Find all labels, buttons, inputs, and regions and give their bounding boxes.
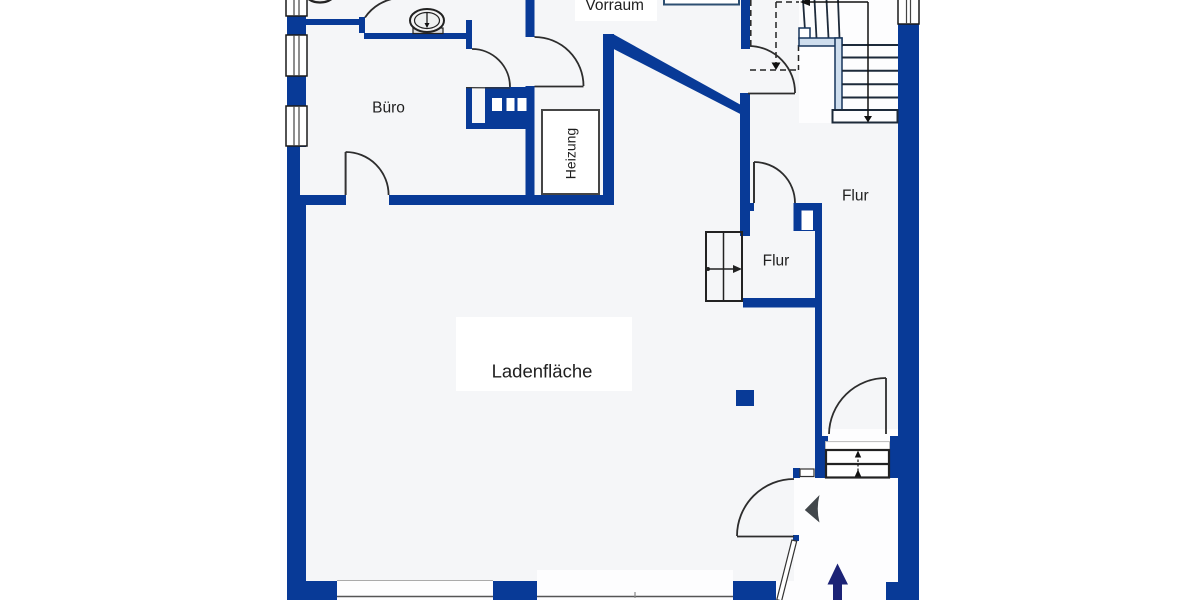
svg-text:Flur: Flur <box>842 188 869 205</box>
svg-text:Flur: Flur <box>763 253 790 270</box>
svg-text:Heizung: Heizung <box>563 128 579 179</box>
svg-text:Vorraum: Vorraum <box>585 0 644 14</box>
svg-text:Ladenfläche: Ladenfläche <box>492 361 593 382</box>
svg-text:Büro: Büro <box>372 100 405 117</box>
